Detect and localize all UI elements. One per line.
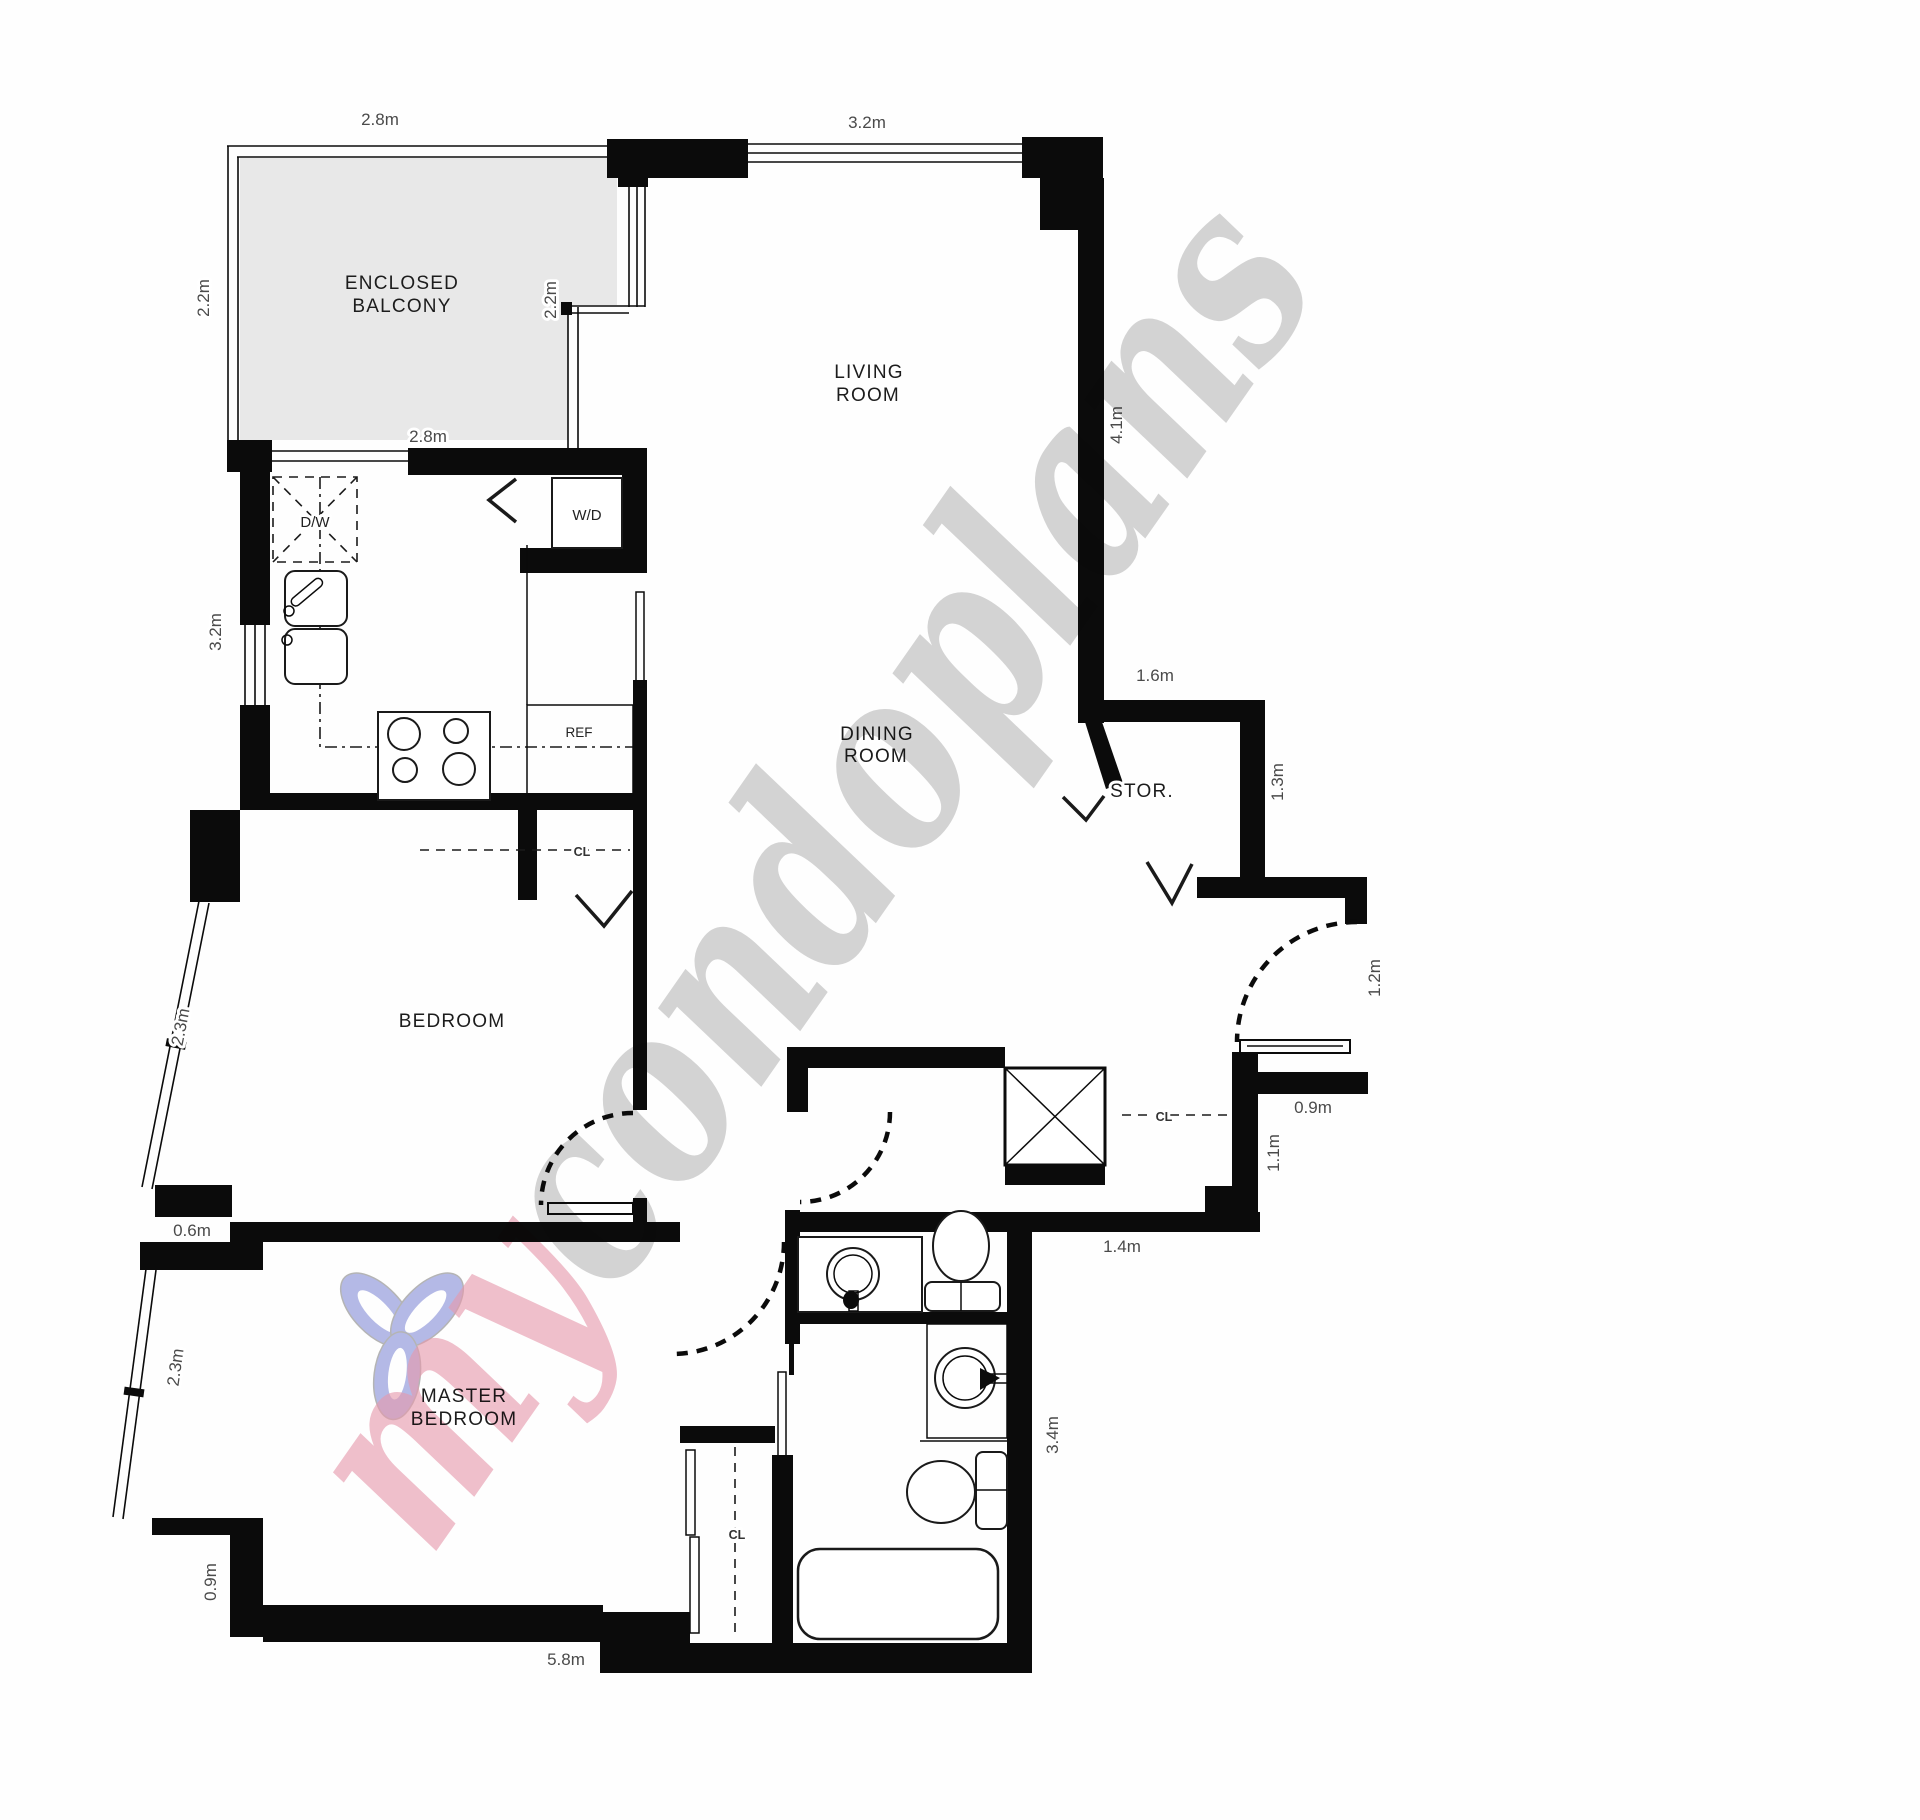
- label-living-line2: ROOM: [836, 385, 900, 406]
- dim-storage-right: 1.3m: [1268, 763, 1287, 801]
- dim-hall-bottom: 1.4m: [1103, 1237, 1141, 1256]
- shaft-box: [1005, 1068, 1105, 1165]
- dim-storage-top: 1.6m: [1136, 666, 1174, 685]
- wd-closet-door: [489, 479, 516, 522]
- bathtub: [798, 1549, 998, 1639]
- floor-plan-svg: ENCLOSED BALCONY LIVING ROOM DINING ROOM…: [0, 0, 1920, 1820]
- floor-plan-page: ENCLOSED BALCONY LIVING ROOM DINING ROOM…: [0, 0, 1920, 1820]
- dim-entry-right: 1.2m: [1365, 959, 1384, 997]
- dim-bedroom-window: 2.3m: [168, 1007, 194, 1048]
- label-closet-bedroom: CL: [574, 845, 591, 859]
- label-closet-master: CL: [729, 1528, 746, 1542]
- dim-kitchen-left: 3.2m: [206, 613, 225, 651]
- label-closet-hall: CL: [1156, 1110, 1173, 1124]
- dim-balcony-left: 2.2m: [194, 279, 213, 317]
- sink-alcove: [927, 1324, 1008, 1438]
- label-balcony-line1: ENCLOSED: [345, 273, 459, 294]
- label-dishwasher: D/W: [300, 514, 330, 531]
- stove: [378, 712, 490, 800]
- label-living-line1: LIVING: [834, 362, 904, 383]
- dim-hall-right: 1.1m: [1264, 1134, 1283, 1172]
- fridge: [527, 705, 633, 795]
- dim-master-left: 0.9m: [201, 1563, 220, 1601]
- label-fridge: REF: [566, 725, 593, 740]
- bath-door-arc: [800, 1112, 890, 1202]
- kitchen-sink: [282, 571, 347, 684]
- dim-living-top: 3.2m: [848, 113, 886, 132]
- label-washer-dryer: W/D: [572, 507, 601, 524]
- dim-master-bottom: 5.8m: [547, 1650, 585, 1669]
- label-balcony-line2: BALCONY: [352, 296, 451, 317]
- dim-master-window: 2.3m: [164, 1347, 188, 1387]
- dim-bedroom-step: 0.6m: [173, 1221, 211, 1240]
- dim-balcony-bottom: 2.8m: [409, 427, 447, 446]
- bathroom: [798, 1211, 1008, 1639]
- label-bedroom: BEDROOM: [399, 1011, 506, 1032]
- entry-door-arc: [1237, 922, 1357, 1042]
- label-storage: STOR.: [1110, 781, 1174, 802]
- vanity-top: [798, 1237, 922, 1312]
- storage-door: [1063, 722, 1192, 903]
- toilet-bottom: [907, 1452, 1007, 1529]
- dim-bath-right: 3.4m: [1043, 1416, 1062, 1454]
- dim-balcony-right: 2.2m: [541, 281, 560, 319]
- dim-entry-closet: 0.9m: [1294, 1098, 1332, 1117]
- dim-balcony-top: 2.8m: [361, 110, 399, 129]
